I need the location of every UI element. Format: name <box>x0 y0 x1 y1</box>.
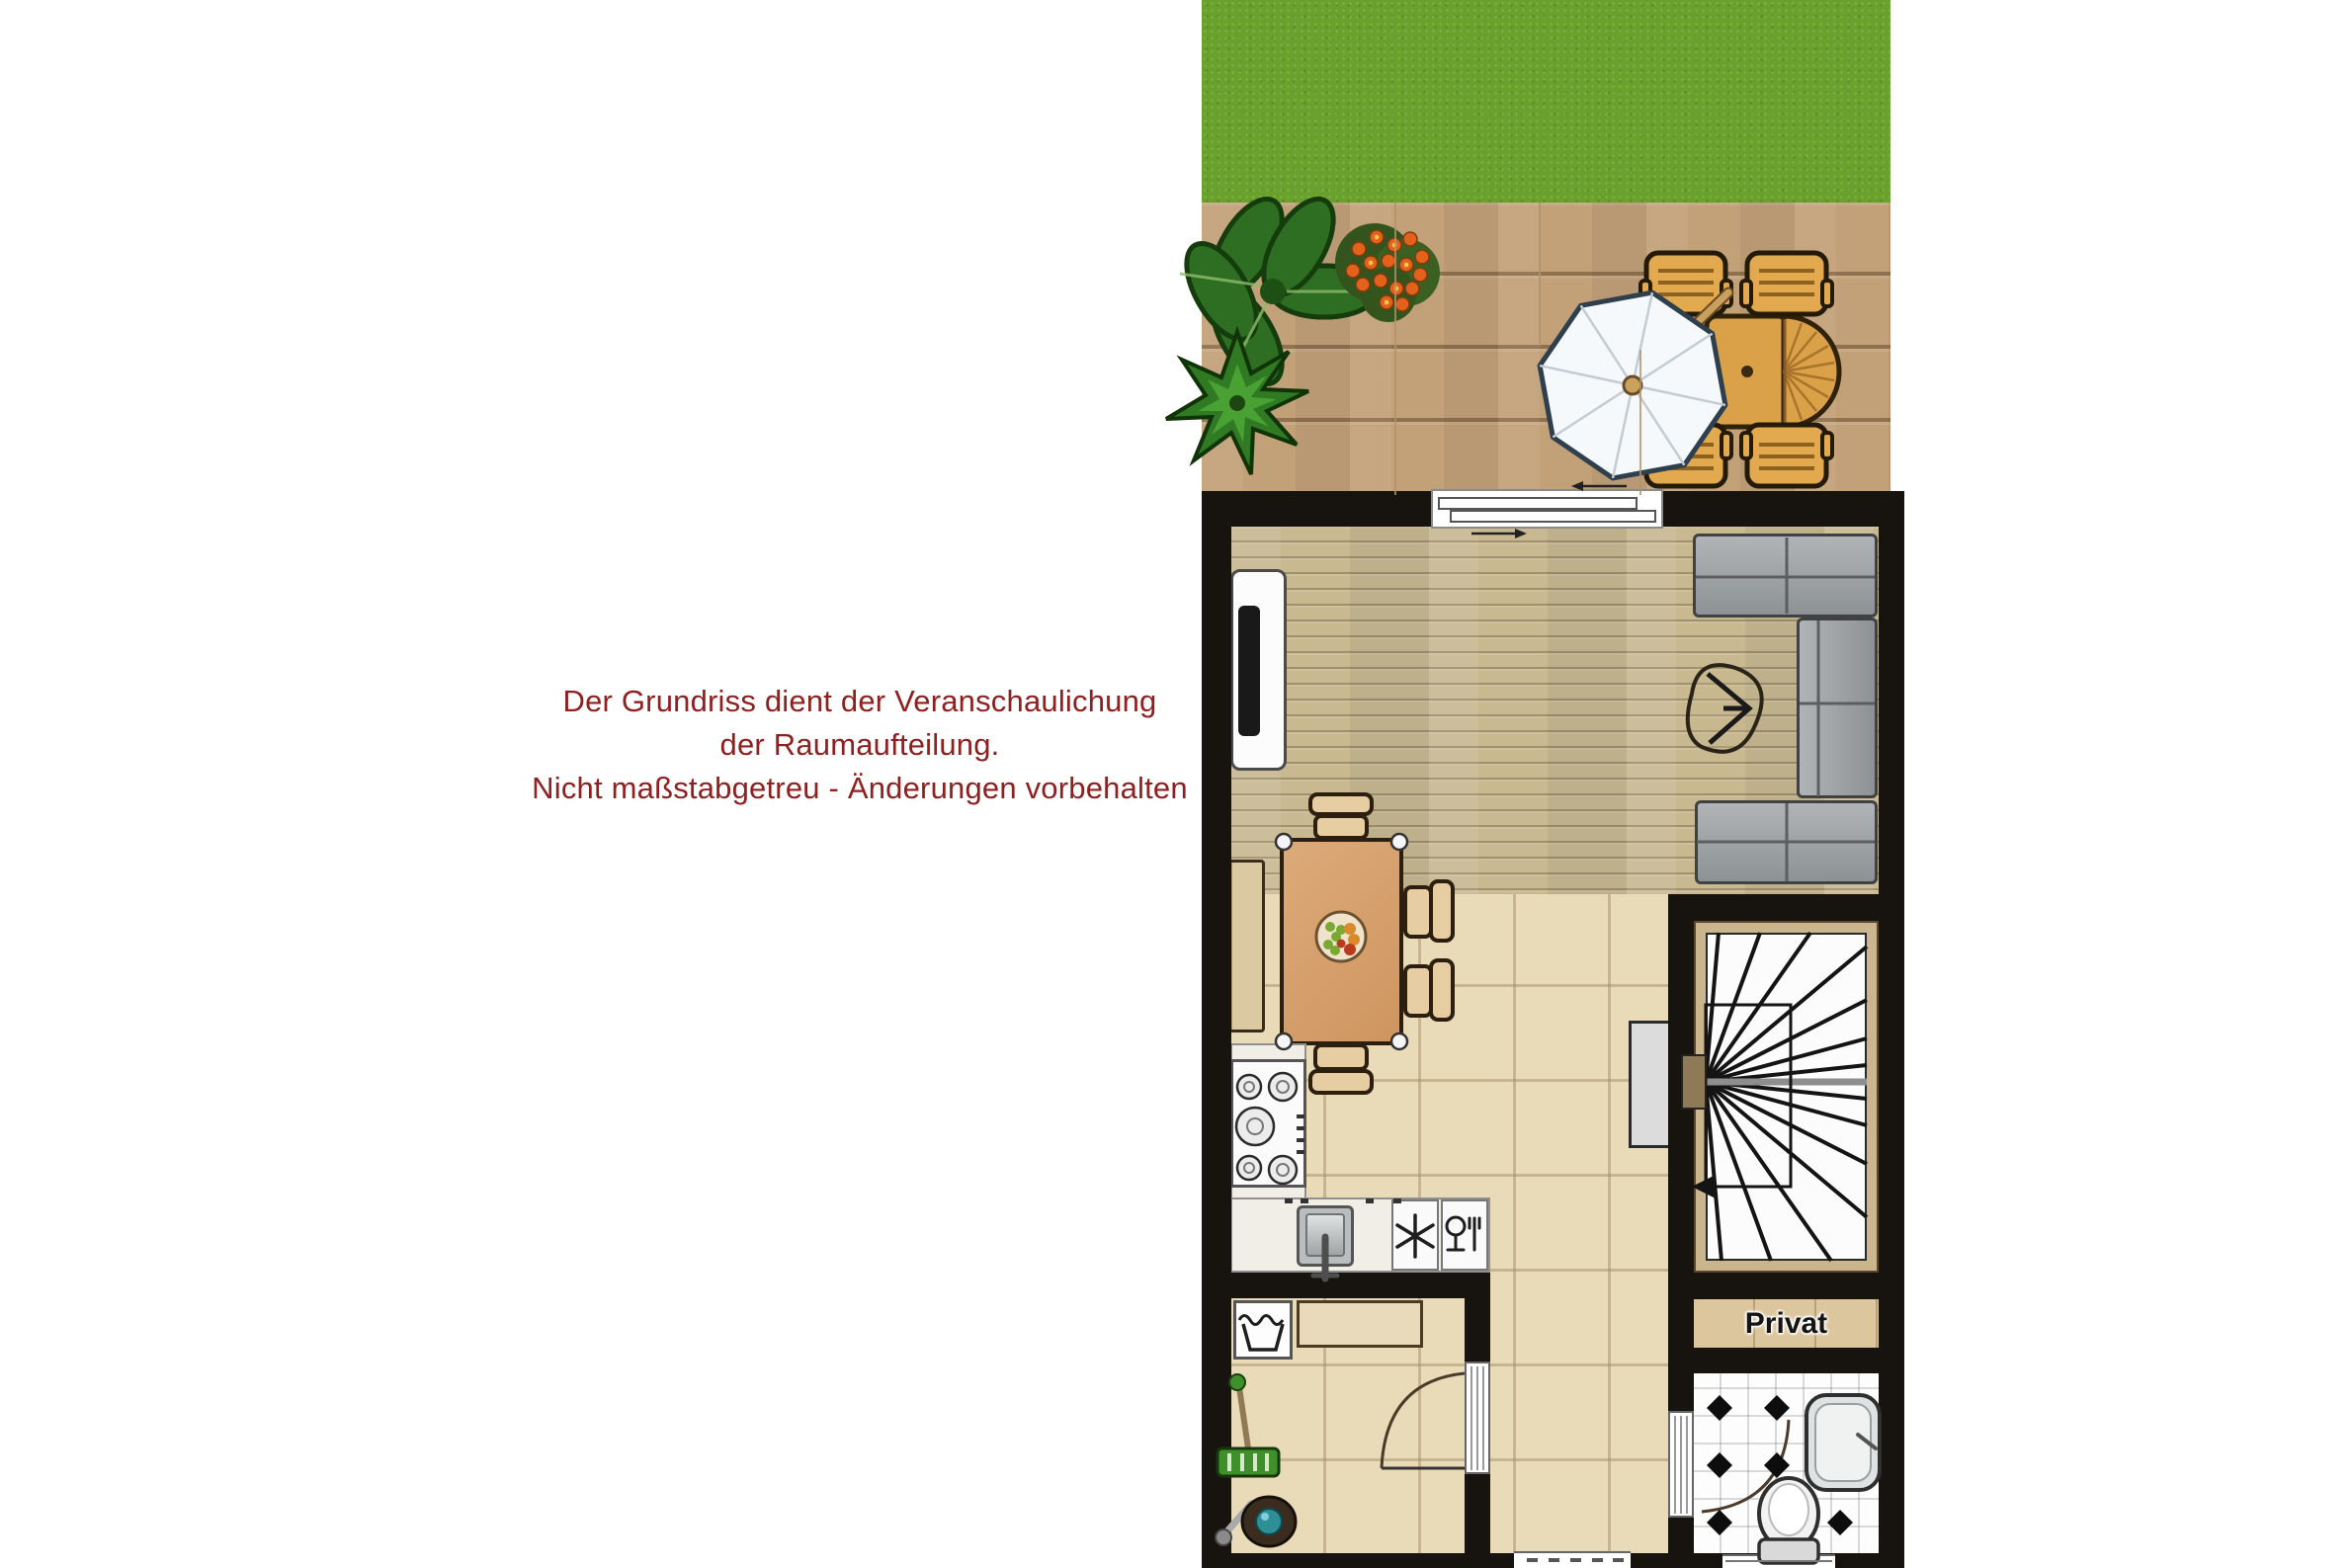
wall-privat-bottom <box>1668 1348 1879 1373</box>
wall-left <box>1202 491 1231 1568</box>
sofa-segment-top <box>1693 534 1878 618</box>
wall-right <box>1879 491 1904 1568</box>
freezer-unit <box>1391 1199 1439 1271</box>
sofa-segment-bottom <box>1695 800 1878 884</box>
dining-table <box>1280 838 1403 1045</box>
stove-cooktop <box>1230 1059 1306 1188</box>
wall-kitchen-utility <box>1202 1273 1490 1298</box>
utility-room-door-opening <box>1465 1362 1490 1474</box>
floor-plan-page: Der Grundriss dient der Veranschaulichun… <box>0 0 2352 1568</box>
disclaimer-text: Der Grundriss dient der Veranschaulichun… <box>425 680 1295 810</box>
sofa-segment-right <box>1797 618 1878 798</box>
bathroom-window <box>1722 1554 1835 1568</box>
dishwasher-unit <box>1441 1199 1488 1271</box>
staircase-treads-area <box>1706 933 1867 1261</box>
wall-stair-top <box>1668 894 1879 921</box>
utility-worktop <box>1297 1300 1423 1348</box>
bathroom-floor <box>1694 1373 1879 1553</box>
privat-label: Privat <box>1694 1299 1879 1348</box>
kitchen-sink <box>1297 1205 1354 1267</box>
kitchen-sink-basin <box>1305 1213 1345 1257</box>
disclaimer-line-1: Der Grundriss dient der Veranschaulichun… <box>425 680 1295 723</box>
wall-stair-bottom <box>1668 1273 1879 1299</box>
terrace-deck <box>1202 203 1890 495</box>
garden-lawn <box>1202 0 1890 203</box>
front-door-opening <box>1514 1551 1631 1568</box>
sliding-terrace-door <box>1431 489 1663 529</box>
disclaimer-line-3: Nicht maßstabgetreu - Änderungen vorbeha… <box>425 767 1295 810</box>
washing-machine <box>1233 1300 1293 1360</box>
bathroom-door-opening <box>1668 1411 1694 1518</box>
disclaimer-line-2: der Raumaufteilung. <box>425 723 1295 767</box>
